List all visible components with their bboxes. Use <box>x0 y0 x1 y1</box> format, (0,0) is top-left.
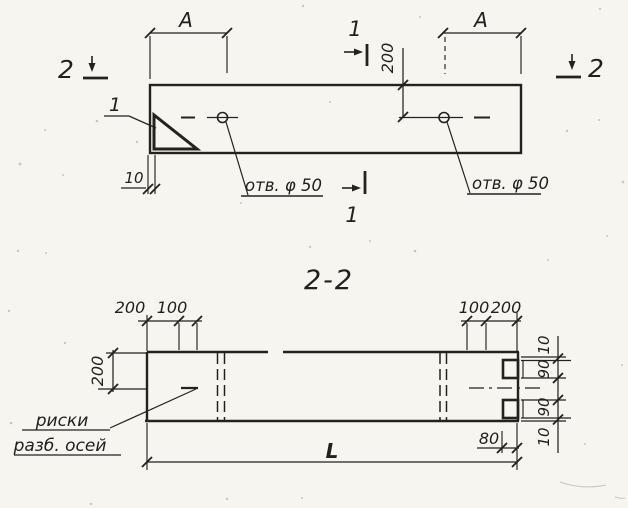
hole-right-label: отв. φ 50 <box>472 174 549 193</box>
section-beam-outline <box>145 352 519 421</box>
svg-text:90: 90 <box>535 359 553 378</box>
hole-left-label: отв. φ 50 <box>245 176 322 195</box>
corner-triangle-detail <box>154 115 197 149</box>
svg-text:A: A <box>177 8 193 32</box>
dim-length-L: L <box>142 423 522 470</box>
detail-label: 1 <box>109 94 121 116</box>
svg-text:1: 1 <box>345 203 358 227</box>
axis-note: риски разб. осей <box>13 389 196 456</box>
dim-left-height: 200 <box>88 348 146 394</box>
svg-text:200: 200 <box>88 356 107 387</box>
svg-text:200: 200 <box>491 298 522 317</box>
technical-drawing: 1 отв. φ 50 отв. φ 50 A A <box>0 0 628 508</box>
svg-text:2: 2 <box>588 54 604 83</box>
svg-text:10: 10 <box>535 427 553 446</box>
section-view-2-2: 2-2 риски разб. осей <box>13 265 571 470</box>
section-mark-2-left: 2 <box>58 55 108 84</box>
svg-text:80: 80 <box>479 429 499 448</box>
top-view: 1 отв. φ 50 отв. φ 50 A A <box>58 8 604 227</box>
plan-beam-outline <box>150 85 521 153</box>
svg-text:1: 1 <box>348 17 361 41</box>
svg-text:100: 100 <box>459 298 490 317</box>
dim-a-left: A <box>145 8 232 79</box>
drawing-sheet: 1 отв. φ 50 отв. φ 50 A A <box>0 0 628 508</box>
svg-text:A: A <box>472 8 488 32</box>
svg-text:10: 10 <box>124 169 143 187</box>
notch-bottom <box>503 400 518 418</box>
dim-10-edge: 10 <box>121 155 160 194</box>
dim-top-right: 100 200 <box>459 298 522 351</box>
dim-notch-80: 80 <box>477 429 522 453</box>
svg-text:2: 2 <box>58 55 74 84</box>
dim-right-chain: 10 90 90 10 <box>521 335 571 453</box>
svg-text:90: 90 <box>535 397 553 416</box>
detail-leader-line <box>104 116 156 128</box>
svg-text:разб. осей: разб. осей <box>13 436 107 456</box>
dim-top-left: 200 100 <box>115 298 202 351</box>
svg-text:200: 200 <box>378 43 397 74</box>
svg-text:10: 10 <box>535 335 553 354</box>
hole-right-leader <box>447 122 470 193</box>
section-mark-1-top: 1 <box>344 17 367 66</box>
notch-top <box>503 360 518 378</box>
svg-text:100: 100 <box>157 298 188 317</box>
section-title: 2-2 <box>304 265 354 296</box>
break-lines <box>218 353 447 420</box>
section-mark-2-right: 2 <box>556 54 604 83</box>
dim-a-right: A <box>438 8 526 74</box>
dim-200-offset: 200 <box>378 43 408 122</box>
section-mark-1-bottom: 1 <box>342 171 365 227</box>
svg-text:L: L <box>326 439 339 463</box>
svg-text:риски: риски <box>35 411 89 431</box>
svg-text:200: 200 <box>115 298 146 317</box>
